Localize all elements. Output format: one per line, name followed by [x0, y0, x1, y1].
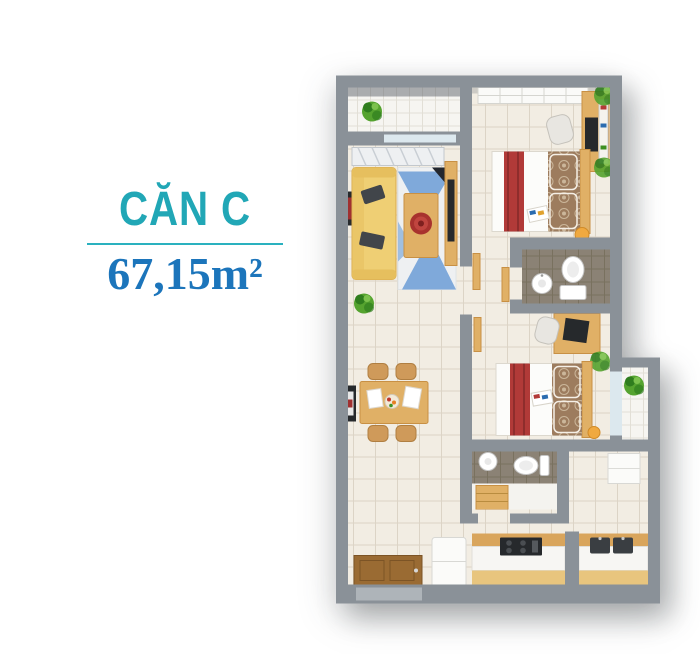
dining-chair — [368, 426, 388, 442]
balcony-plant-icon — [362, 102, 382, 122]
open-door-leaf — [473, 254, 480, 290]
sink — [479, 453, 497, 471]
door-handle — [414, 569, 418, 573]
toilet — [514, 456, 549, 476]
balcony-sliding-door — [384, 135, 456, 143]
bedside-lamp — [588, 427, 600, 439]
fridge — [432, 538, 466, 588]
entrance-opening — [356, 588, 422, 601]
window — [478, 88, 588, 104]
apartment-title: CĂN C — [72, 186, 299, 234]
desk — [554, 314, 600, 354]
living-plant-icon — [354, 294, 374, 314]
placemat — [402, 386, 421, 408]
logia-plant-icon — [624, 376, 644, 396]
dining-chair — [396, 364, 416, 380]
coffee-table — [404, 194, 438, 258]
stove — [500, 538, 542, 556]
info-panel: CĂN C 67,15m² — [50, 186, 320, 297]
magazine — [531, 390, 553, 406]
balcony-sliding-door — [610, 372, 622, 436]
sink — [532, 274, 552, 294]
floor-plan-image — [332, 60, 662, 608]
bed — [496, 362, 592, 438]
blanket — [552, 364, 582, 436]
desk-plant-icon — [590, 352, 610, 372]
laptop — [563, 318, 590, 343]
dining-chair — [396, 426, 416, 442]
placemat — [367, 389, 383, 409]
tv-cabinet — [445, 162, 457, 266]
entrance-door — [354, 556, 422, 586]
sofa — [352, 168, 396, 280]
open-door-leaf — [474, 318, 481, 352]
room-balcony — [348, 88, 460, 132]
room-living-dining — [344, 146, 472, 588]
monitor — [585, 118, 598, 152]
open-door-leaf — [502, 268, 509, 302]
apartment-area: 67,15m² — [50, 251, 320, 297]
dining-chair — [368, 364, 388, 380]
wall-cabinet — [608, 454, 640, 484]
room-bathroom-2 — [472, 452, 557, 514]
room-bedroom-2 — [472, 314, 610, 440]
bath-mat — [476, 486, 508, 510]
room-logia — [622, 368, 648, 440]
kitchen-wall-stub — [565, 532, 579, 585]
floor-plan — [332, 60, 662, 608]
headboard — [580, 150, 590, 234]
kitchen-sink-counter — [579, 534, 648, 585]
tv — [448, 180, 455, 242]
curtain — [352, 148, 444, 166]
bed — [492, 150, 590, 234]
balcony-shadow — [348, 88, 460, 97]
kitchen-counter — [472, 534, 565, 585]
faucet — [598, 537, 601, 540]
blanket — [548, 152, 580, 232]
headboard — [582, 362, 592, 438]
faucet — [621, 537, 624, 540]
room-bedroom-1 — [472, 86, 614, 242]
title-divider — [87, 243, 283, 245]
room-bathroom-1 — [522, 250, 610, 304]
